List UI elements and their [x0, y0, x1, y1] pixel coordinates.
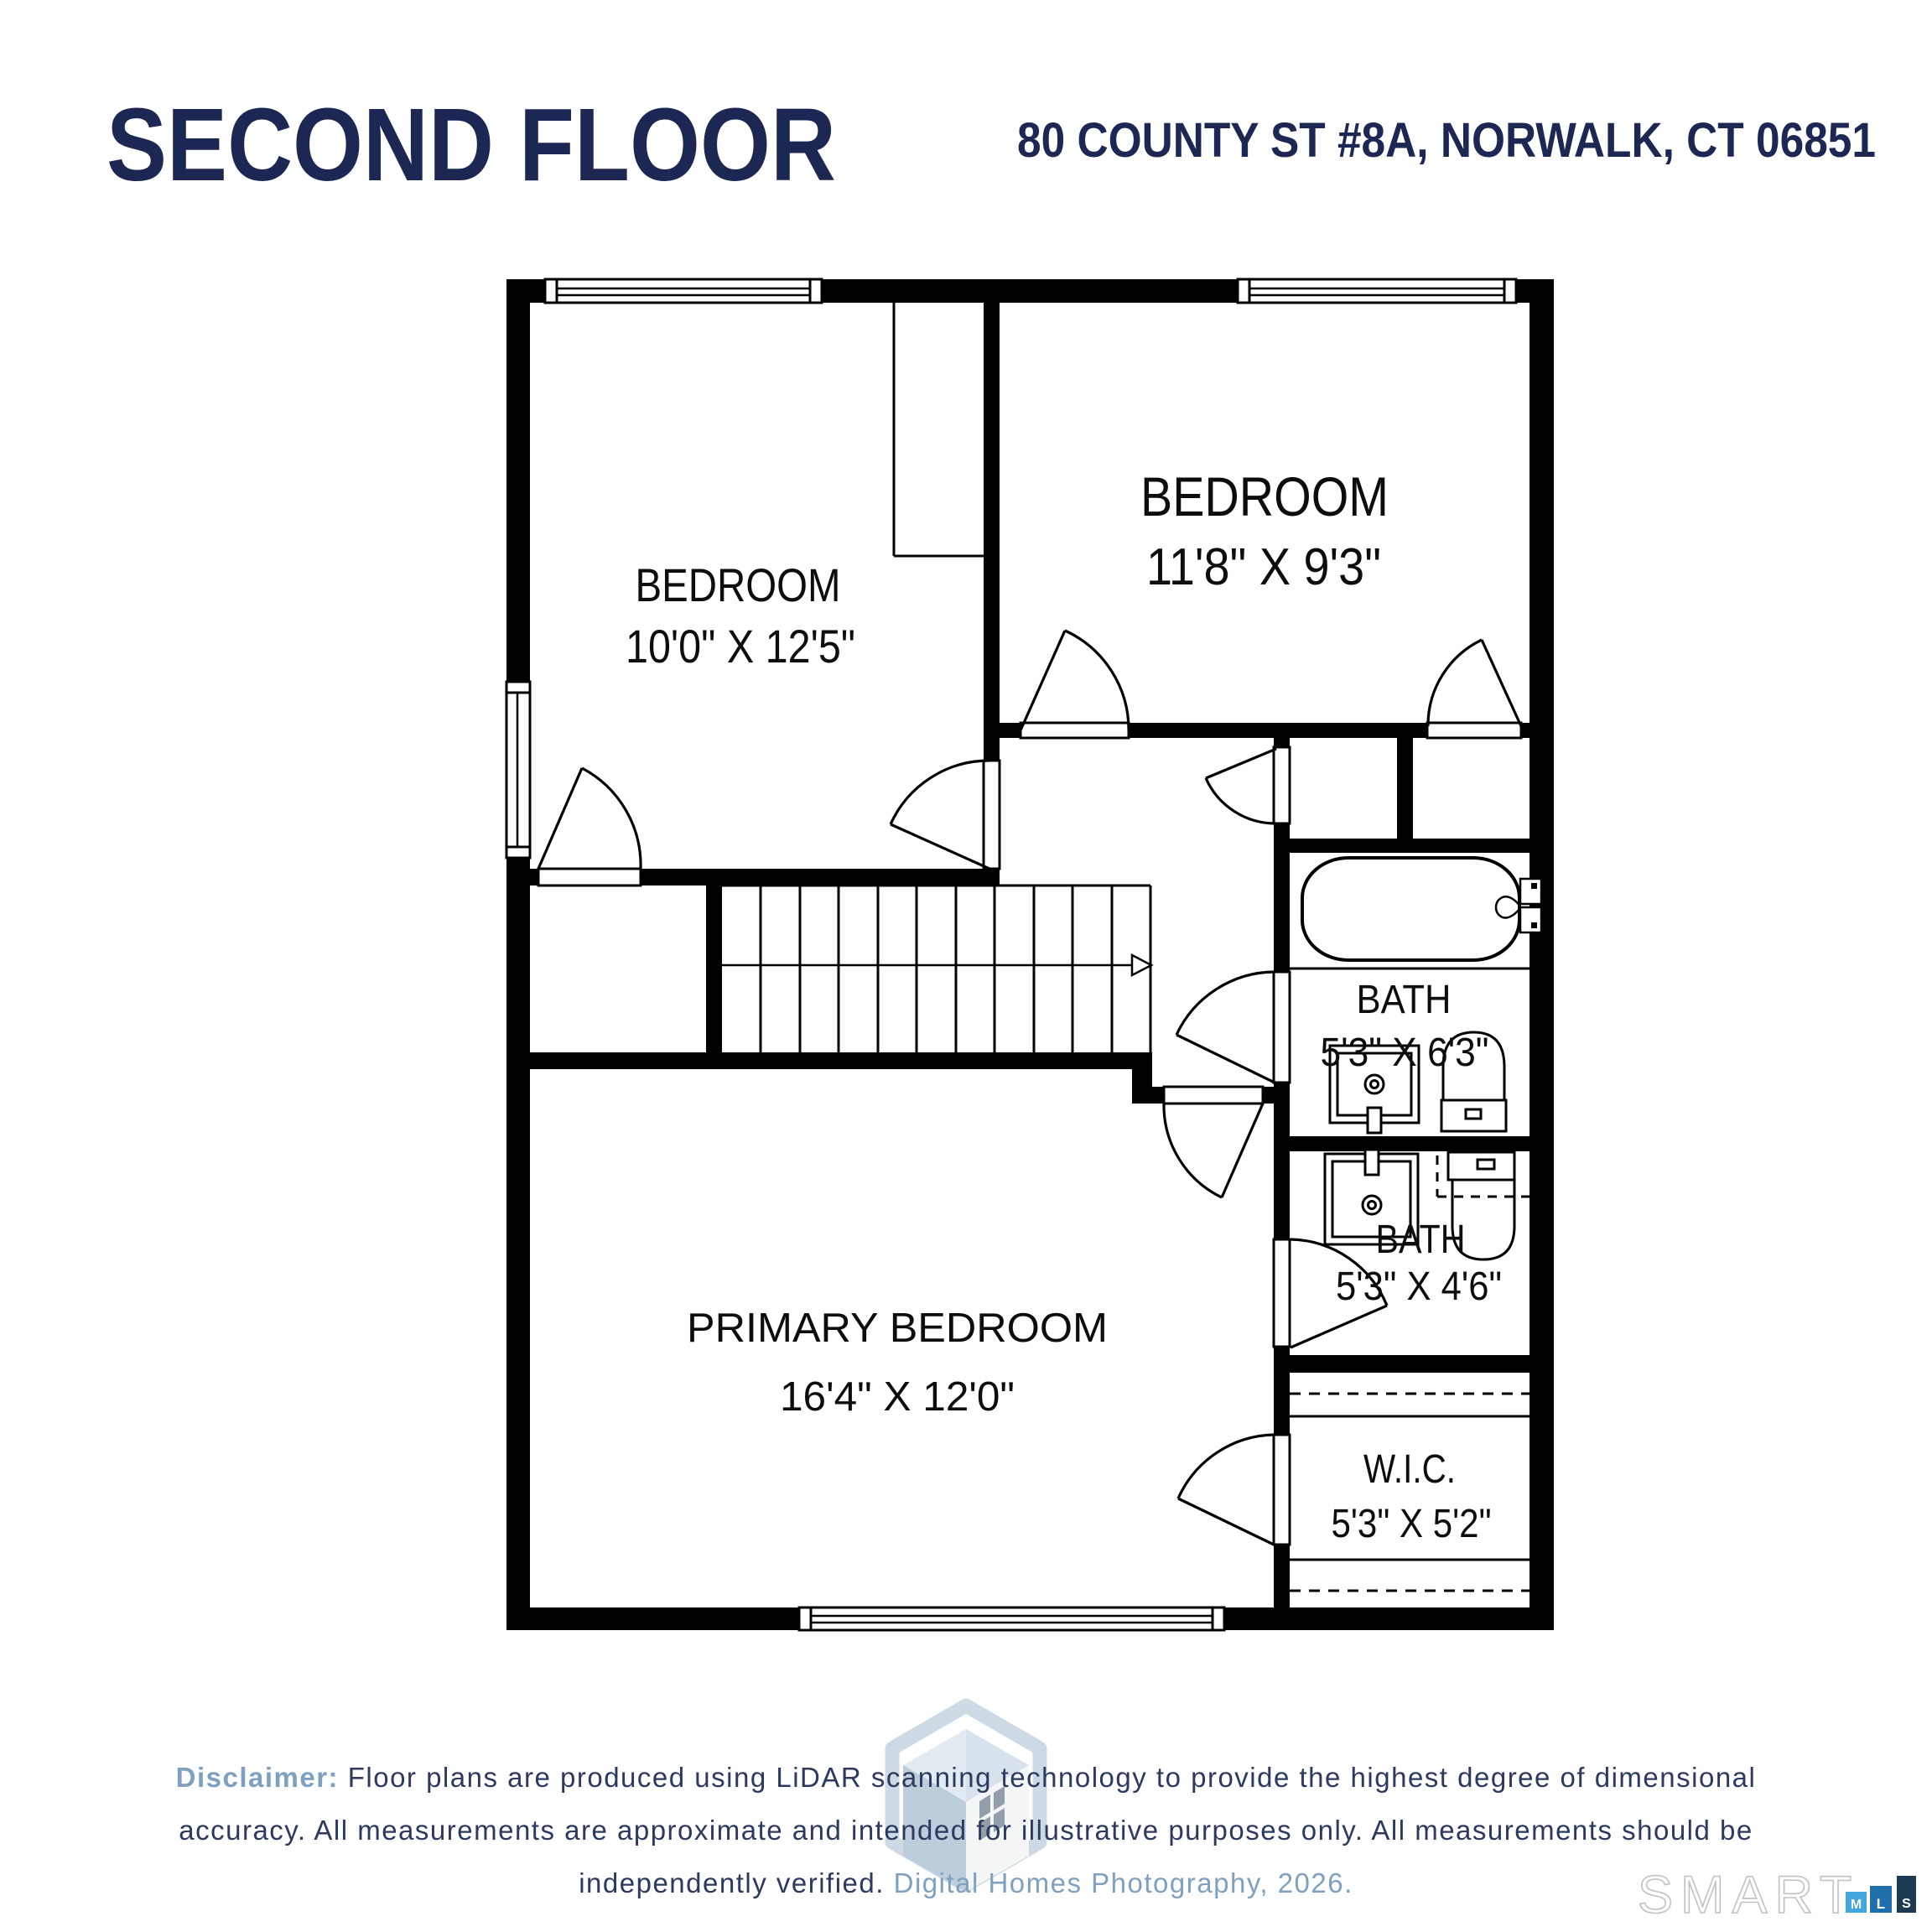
svg-text:BATH: BATH	[1376, 1218, 1466, 1262]
svg-text:BEDROOM: BEDROOM	[636, 558, 841, 611]
svg-text:16'4" X 12'0": 16'4" X 12'0"	[780, 1374, 1015, 1420]
svg-text:accuracy. All measurements are: accuracy. All measurements are approxima…	[179, 1815, 1753, 1846]
svg-text:5'3" X 4'6": 5'3" X 4'6"	[1336, 1265, 1502, 1309]
svg-text:BEDROOM: BEDROOM	[1140, 465, 1389, 527]
svg-text:L: L	[1877, 1896, 1885, 1912]
svg-text:W.I.C.: W.I.C.	[1363, 1447, 1456, 1492]
svg-text:11'8" X 9'3": 11'8" X 9'3"	[1146, 538, 1381, 596]
svg-text:independently verified. Digita: independently verified. Digital Homes Ph…	[579, 1867, 1353, 1898]
svg-text:80 COUNTY ST #8A, NORWALK, CT: 80 COUNTY ST #8A, NORWALK, CT 06851	[1017, 113, 1876, 168]
svg-text:M: M	[1851, 1898, 1862, 1912]
svg-text:S: S	[1902, 1897, 1911, 1911]
svg-text:PRIMARY BEDROOM: PRIMARY BEDROOM	[687, 1306, 1108, 1351]
svg-text:SMART: SMART	[1638, 1866, 1859, 1924]
svg-text:5'3" X 5'2": 5'3" X 5'2"	[1332, 1502, 1492, 1546]
svg-text:10'0" X 12'5": 10'0" X 12'5"	[626, 620, 855, 673]
svg-text:BATH: BATH	[1357, 978, 1452, 1022]
svg-text:Disclaimer: Floor plans are pr: Disclaimer: Floor plans are produced usi…	[176, 1762, 1757, 1793]
svg-text:5'3" X 6'3": 5'3" X 6'3"	[1321, 1031, 1489, 1075]
svg-text:SECOND FLOOR: SECOND FLOOR	[106, 88, 836, 203]
